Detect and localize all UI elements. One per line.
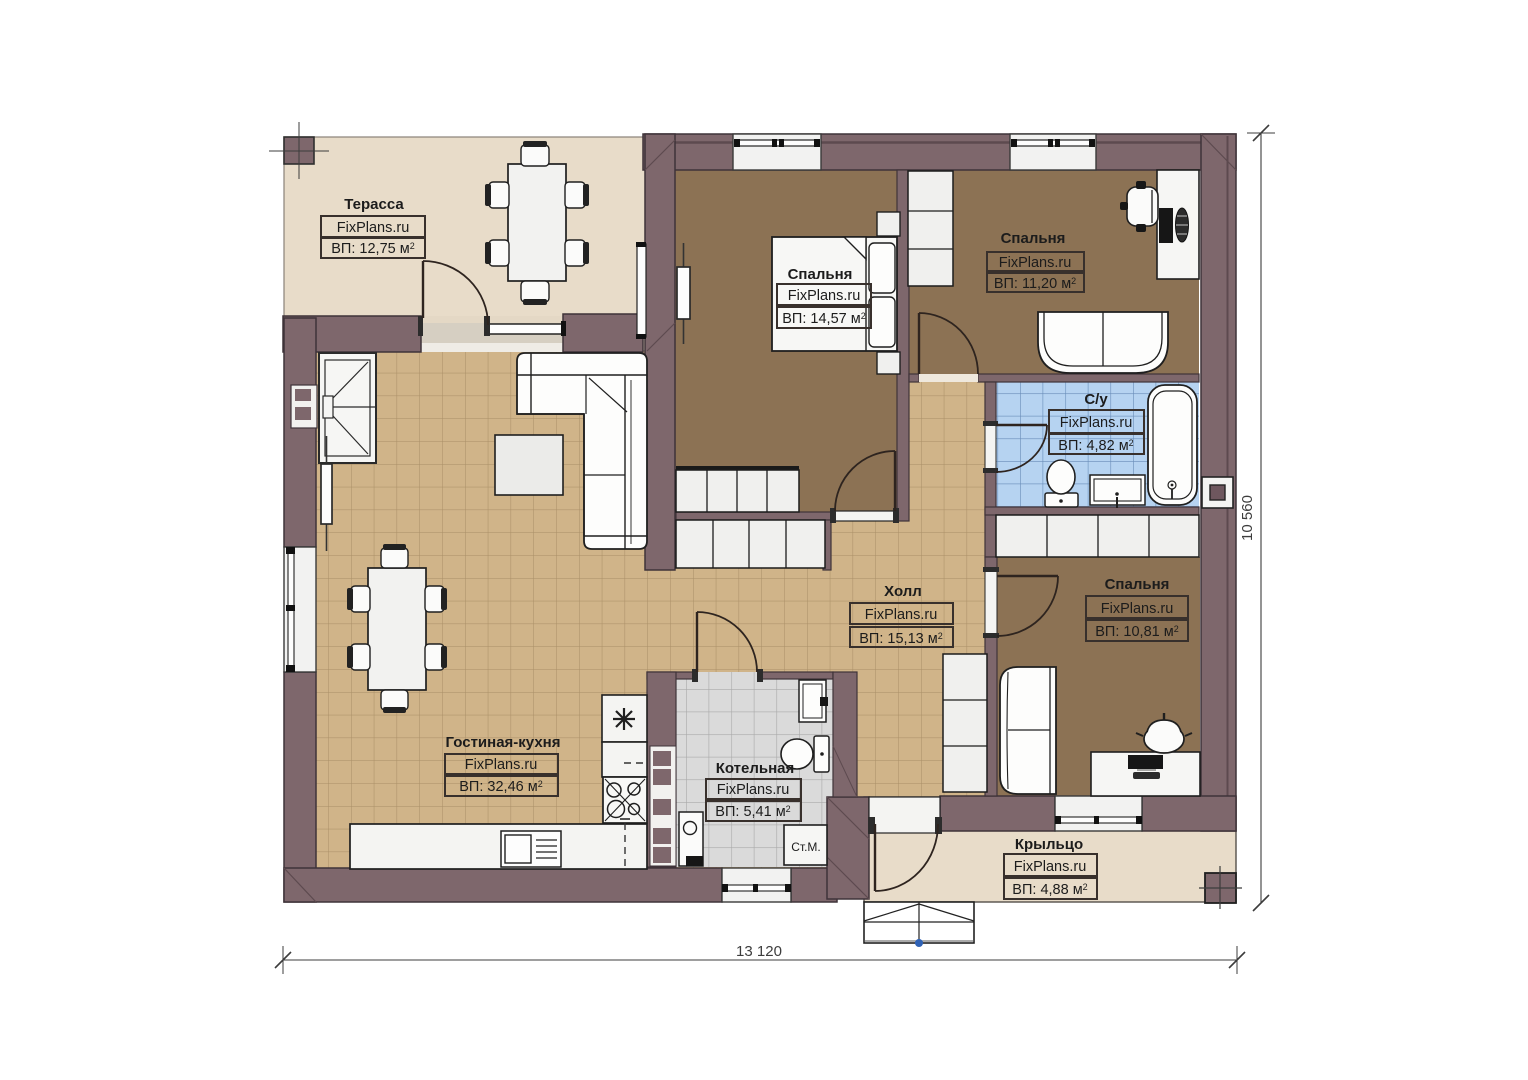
svg-text:ВП: 10,81 м2: ВП: 10,81 м2 [1095, 624, 1178, 640]
svg-text:ВП: 5,41 м2: ВП: 5,41 м2 [715, 804, 790, 820]
svg-text:Гостиная-кухня: Гостиная-кухня [446, 734, 561, 751]
svg-text:ВП: 15,13 м2: ВП: 15,13 м2 [859, 631, 942, 647]
svg-text:FixPlans.ru: FixPlans.ru [1014, 859, 1087, 875]
svg-text:Крыльцо: Крыльцо [1015, 836, 1083, 853]
svg-text:Терасса: Терасса [344, 196, 404, 213]
svg-text:FixPlans.ru: FixPlans.ru [465, 757, 538, 773]
svg-text:Спальня: Спальня [788, 266, 853, 283]
svg-text:ВП: 14,57 м2: ВП: 14,57 м2 [782, 311, 865, 327]
svg-text:Спальня: Спальня [1001, 230, 1066, 247]
svg-text:Котельная: Котельная [716, 760, 795, 777]
svg-text:ВП: 4,82 м2: ВП: 4,82 м2 [1058, 438, 1133, 454]
svg-text:С/у: С/у [1084, 391, 1108, 408]
svg-text:ВП: 11,20 м2: ВП: 11,20 м2 [994, 276, 1076, 292]
svg-text:13 120: 13 120 [736, 943, 782, 960]
svg-text:ВП: 4,88 м2: ВП: 4,88 м2 [1012, 882, 1087, 898]
svg-text:ВП: 32,46 м2: ВП: 32,46 м2 [459, 779, 542, 795]
svg-text:Холл: Холл [884, 583, 922, 600]
svg-text:Спальня: Спальня [1105, 576, 1170, 593]
svg-text:10 560: 10 560 [1239, 495, 1256, 541]
svg-text:FixPlans.ru: FixPlans.ru [337, 220, 410, 236]
svg-text:Ст.М.: Ст.М. [791, 840, 821, 854]
svg-text:FixPlans.ru: FixPlans.ru [1060, 415, 1133, 431]
svg-text:FixPlans.ru: FixPlans.ru [788, 288, 861, 304]
svg-text:FixPlans.ru: FixPlans.ru [717, 782, 790, 798]
svg-text:ВП: 12,75 м2: ВП: 12,75 м2 [331, 241, 414, 257]
svg-text:FixPlans.ru: FixPlans.ru [1101, 601, 1174, 617]
svg-text:FixPlans.ru: FixPlans.ru [999, 255, 1072, 271]
svg-text:FixPlans.ru: FixPlans.ru [865, 607, 938, 623]
